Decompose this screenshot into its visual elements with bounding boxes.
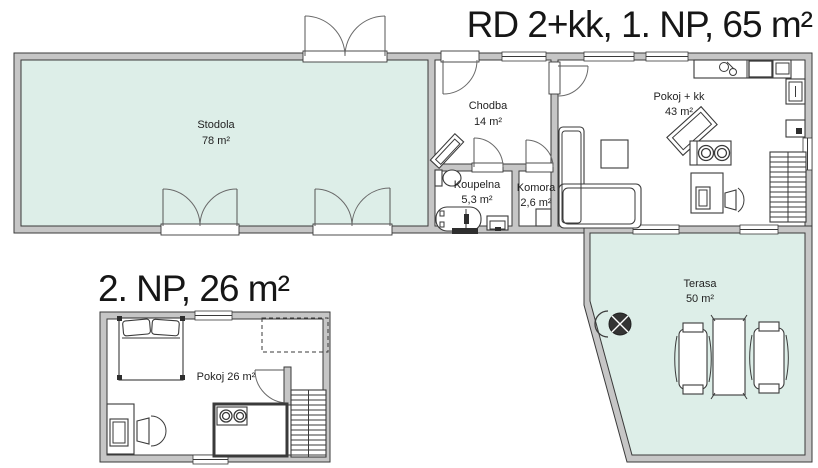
terrace-opening — [740, 225, 778, 234]
room-label-komora: Komora — [517, 182, 556, 194]
coffee-table-icon — [601, 140, 628, 168]
room-label-pokoj2: Pokoj 26 m² — [197, 371, 256, 383]
desk-icon — [691, 173, 723, 213]
room-area-stodola: 78 m² — [202, 135, 230, 147]
room-label-koupelna: Koupelna — [454, 179, 501, 191]
room-label-chodba: Chodba — [469, 100, 508, 112]
shelf-icon — [536, 209, 551, 226]
room-area-terasa: 50 m² — [686, 293, 714, 305]
wall-stub — [284, 367, 291, 405]
stairs-icon — [291, 390, 326, 457]
room-area-koupelna: 5,3 m² — [461, 194, 493, 206]
title-floor1: RD 2+kk, 1. NP, 65 m² — [467, 4, 813, 45]
bed-icon — [117, 316, 185, 380]
cooktop-icon — [690, 141, 731, 165]
floorplan-drawing: RD 2+kk, 1. NP, 65 m² 2. NP, 26 m² Stodo… — [0, 0, 818, 468]
kitchen-counter-icon — [694, 60, 791, 78]
window — [646, 52, 688, 61]
window — [584, 52, 634, 61]
fridge-icon — [786, 79, 805, 104]
room-label-terasa: Terasa — [683, 278, 717, 290]
sink-icon — [487, 216, 508, 231]
threshold-mark — [452, 228, 478, 234]
lounger-icon — [675, 323, 712, 394]
stairs-icon — [770, 152, 806, 222]
window — [195, 311, 232, 320]
desk-icon — [107, 404, 134, 454]
room-area-chodba: 14 m² — [474, 116, 502, 128]
lounger-icon — [750, 322, 789, 393]
title-floor2: 2. NP, 26 m² — [98, 268, 290, 309]
double-door — [303, 16, 387, 62]
room-label-stodola: Stodola — [197, 119, 235, 131]
room-area-pokojkk: 43 m² — [665, 106, 693, 118]
room-label-pokojkk: Pokoj + kk — [653, 91, 705, 103]
boiler-icon — [786, 120, 805, 137]
terrace-table-icon — [711, 315, 747, 399]
room-area-komora: 2,6 m² — [520, 197, 552, 209]
bathtub-icon — [436, 207, 481, 234]
floorplan-page: RD 2+kk, 1. NP, 65 m² 2. NP, 26 m² Stodo… — [0, 0, 818, 468]
window — [502, 52, 546, 61]
